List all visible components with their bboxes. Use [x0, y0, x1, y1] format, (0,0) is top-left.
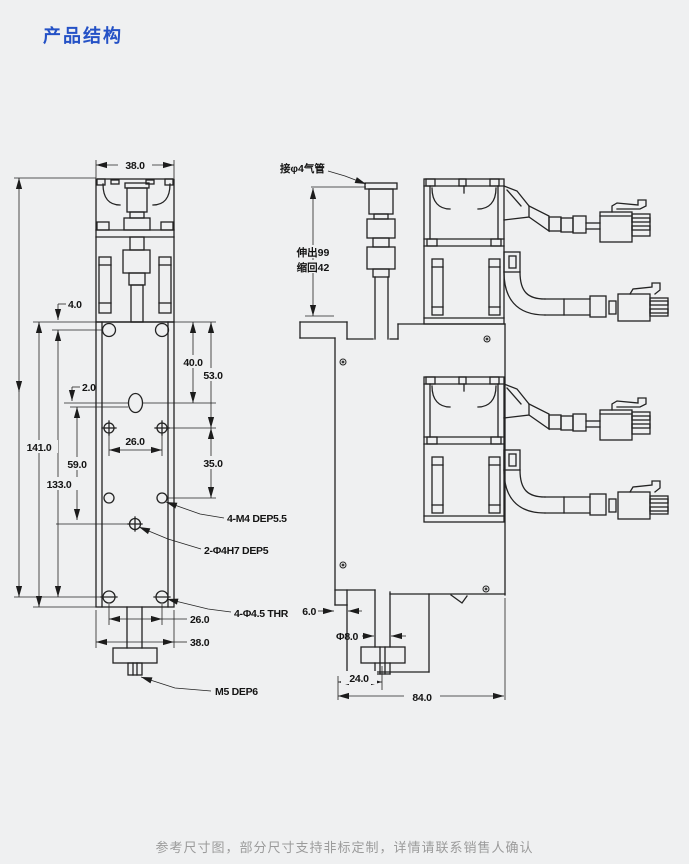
- dim-body-width: 84.0: [412, 692, 432, 704]
- callout-dowel: 2-Φ4H7 DEP5: [204, 545, 269, 557]
- label-air-tube: 接φ4气管: [280, 162, 325, 175]
- dim-hole-pitch-bottom: 26.0: [190, 614, 210, 626]
- dim-shaft-dia: Φ8.0: [336, 631, 358, 643]
- dim-lower-span: 35.0: [203, 458, 223, 470]
- dim-notch: 6.0: [302, 606, 316, 618]
- label-retract: 缩回42: [297, 261, 330, 274]
- side-view-screws: [340, 336, 490, 592]
- dim-dowel-span: 59.0: [67, 459, 87, 471]
- valve-assembly-lower: [424, 377, 668, 522]
- front-view-part: [96, 179, 174, 675]
- dim-center-offset: 2.0: [82, 382, 96, 394]
- dim-upper-span: 53.0: [203, 370, 223, 382]
- callout-m4: 4-M4 DEP5.5: [227, 513, 287, 525]
- dim-slot-span: 133.0: [47, 479, 72, 491]
- dim-total-height: 141.0: [27, 442, 52, 454]
- dim-oval-from-top: 40.0: [183, 357, 203, 369]
- product-structure-page: 产品结构: [0, 0, 689, 864]
- valve-assembly-upper: [424, 179, 668, 324]
- side-view-labels: 接φ4气管 伸出99 缩回42 6.0 Φ8.0 24.0 84.0: [280, 162, 440, 704]
- front-view-dimensions: [14, 160, 231, 691]
- dim-hole-pitch: 26.0: [125, 436, 145, 448]
- dim-width-bottom: 38.0: [190, 637, 210, 649]
- callout-m5: M5 DEP6: [215, 686, 258, 698]
- dim-width-top: 38.0: [125, 160, 145, 172]
- dim-edge-offset: 4.0: [68, 299, 82, 311]
- dim-shaft-offset: 24.0: [349, 673, 369, 685]
- technical-drawing: 38.0 4.0 2.0 141.0 133.0 59.0 40.0 53.0 …: [0, 0, 689, 864]
- label-extend: 伸出99: [296, 246, 330, 259]
- callout-thr: 4-Φ4.5 THR: [234, 608, 289, 620]
- footer-note: 参考尺寸图，部分尺寸支持非标定制，详情请联系销售人确认: [0, 837, 689, 856]
